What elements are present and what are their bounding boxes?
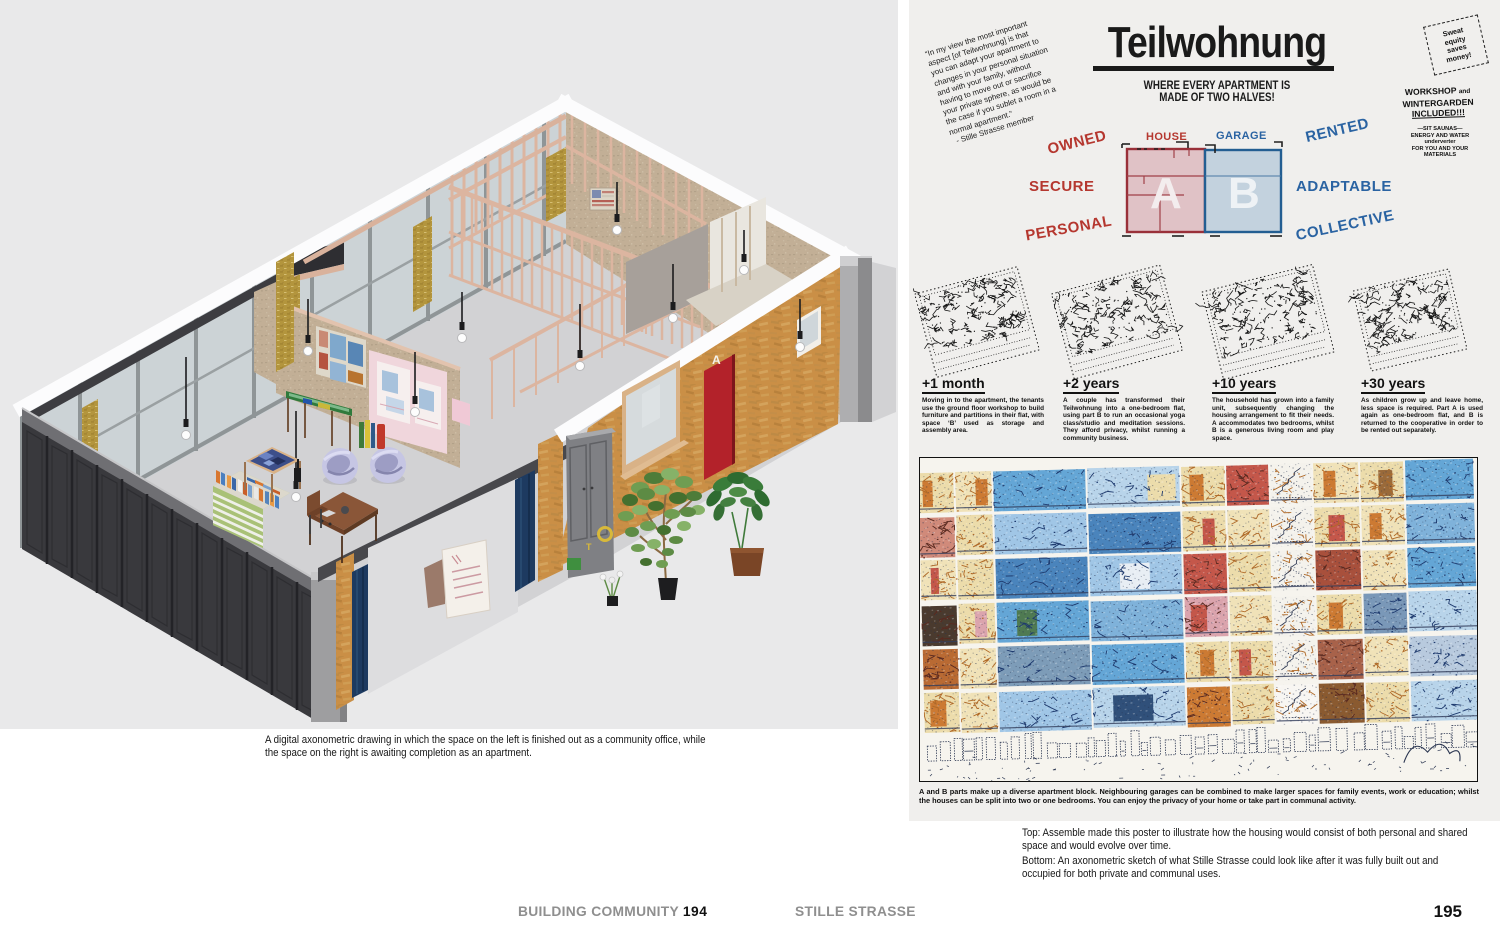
svg-text:A: A: [1150, 169, 1182, 218]
svg-text:A: A: [712, 353, 721, 367]
svg-text:T: T: [586, 542, 592, 552]
svg-text:B: B: [1228, 169, 1260, 218]
